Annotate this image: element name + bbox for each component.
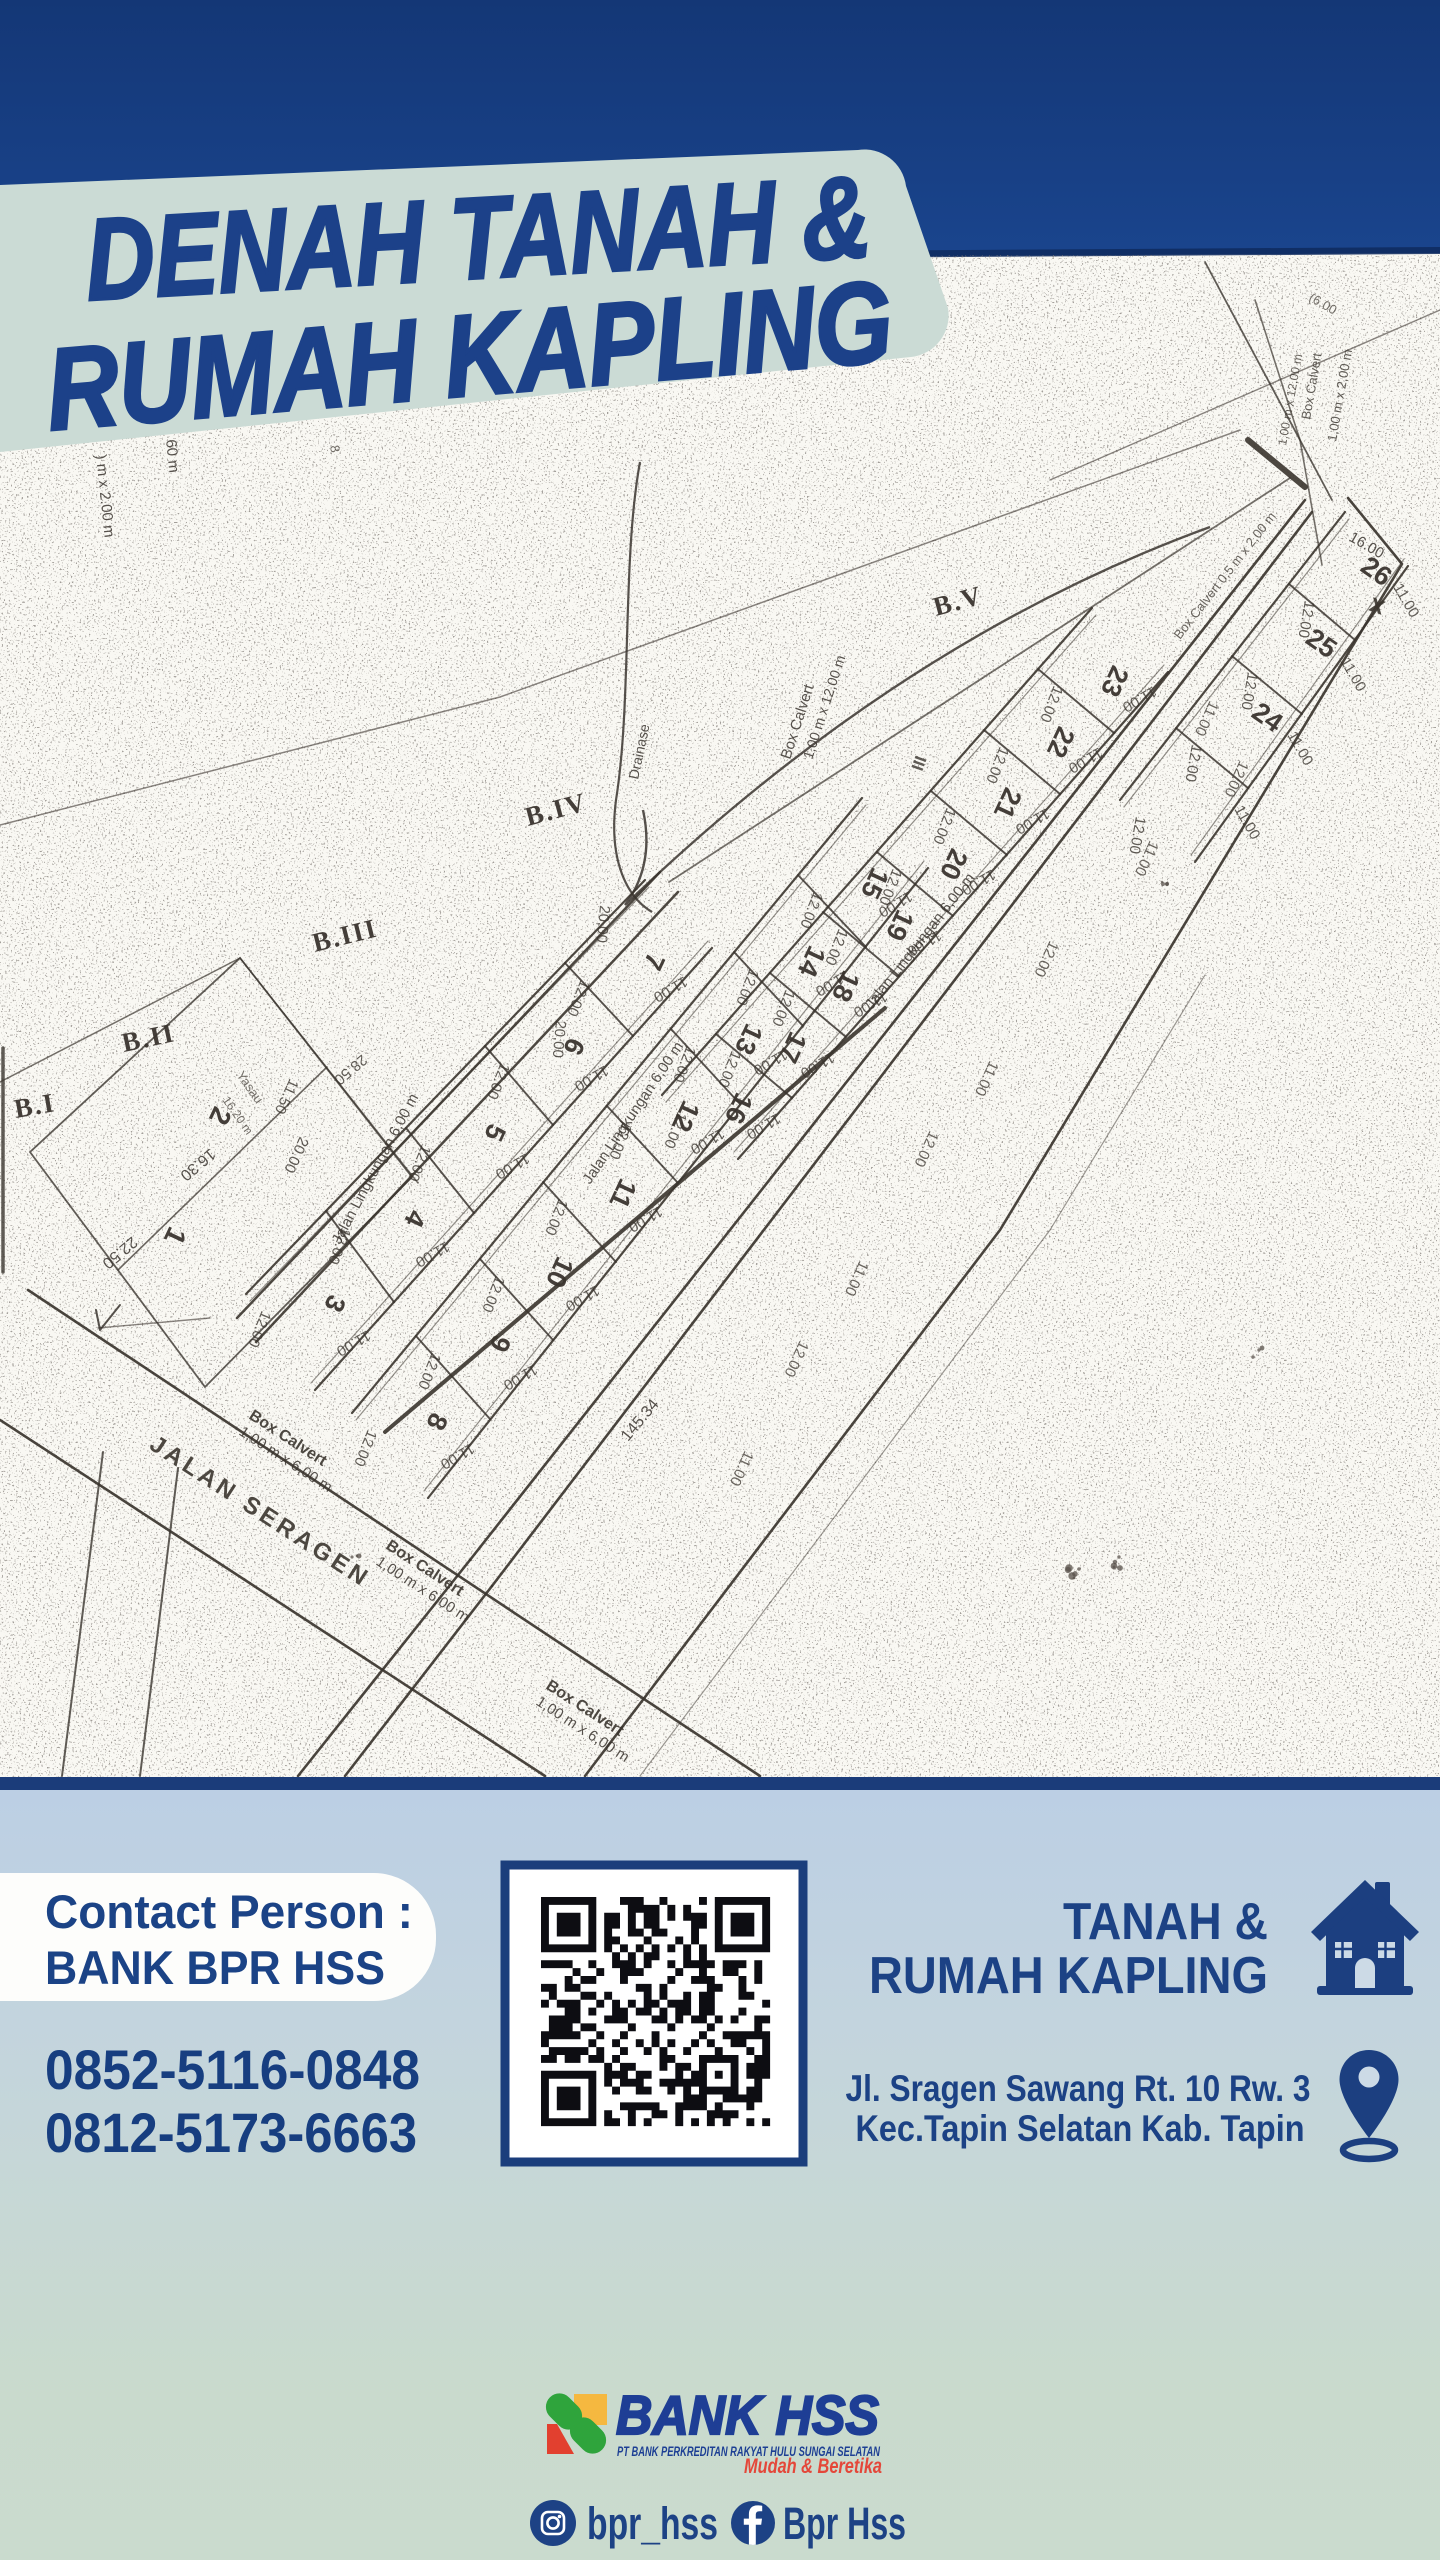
svg-text:20,00: 20,00 <box>593 905 613 944</box>
svg-text:Contact Person :: Contact Person : <box>45 1885 413 1938</box>
svg-text:BANK BPR HSS: BANK BPR HSS <box>45 1941 385 1994</box>
svg-text:TANAH &: TANAH & <box>1063 1893 1268 1951</box>
svg-text:RUMAH KAPLING: RUMAH KAPLING <box>869 1947 1268 2005</box>
svg-text:Kec.Tapin Selatan Kab. Tapin: Kec.Tapin Selatan Kab. Tapin <box>856 2108 1305 2149</box>
svg-text:BANK HSS: BANK HSS <box>616 2384 879 2446</box>
svg-text:0812-5173-6663: 0812-5173-6663 <box>45 2101 417 2164</box>
svg-text:Mudah & Beretika: Mudah & Beretika <box>744 2455 882 2478</box>
svg-text:Bpr Hss: Bpr Hss <box>783 2498 906 2549</box>
svg-text:20,00: 20,00 <box>549 1020 569 1059</box>
svg-text:Jl. Sragen Sawang Rt. 10 Rw. 3: Jl. Sragen Sawang Rt. 10 Rw. 3 <box>846 2068 1311 2109</box>
svg-text:0852-5116-0848: 0852-5116-0848 <box>45 2038 420 2101</box>
svg-text:bpr_hss: bpr_hss <box>587 2498 718 2549</box>
